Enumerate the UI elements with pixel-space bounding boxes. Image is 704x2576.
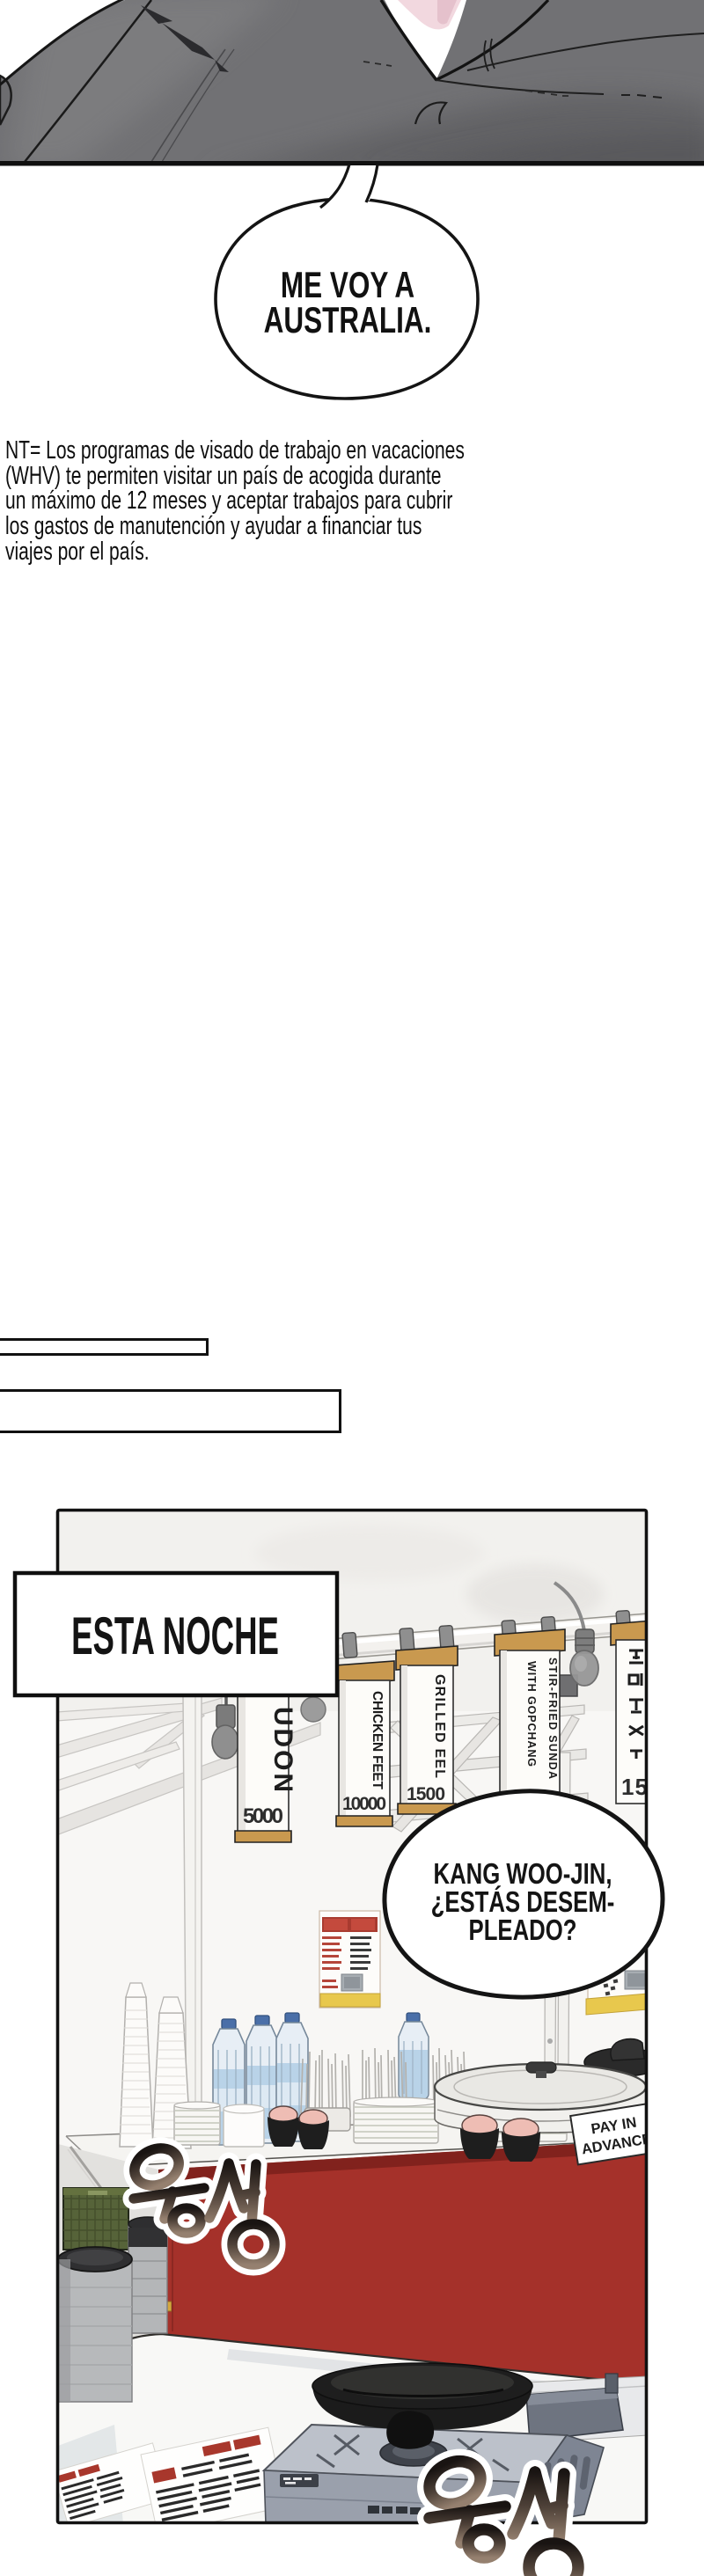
svg-text:ESTA NOCHE: ESTA NOCHE — [71, 1606, 279, 1666]
svg-text:5000: 5000 — [243, 1804, 283, 1828]
svg-text:UDON: UDON — [268, 1707, 297, 1793]
svg-text:WITH GOPCHANG: WITH GOPCHANG — [525, 1661, 538, 1767]
svg-text:10000: 10000 — [342, 1794, 386, 1814]
svg-text:PLEADO?: PLEADO? — [469, 1914, 577, 1947]
svg-text:CHICKEN FEET: CHICKEN FEET — [370, 1691, 385, 1790]
svg-text:1500: 1500 — [407, 1784, 445, 1804]
svg-text:15: 15 — [621, 1774, 648, 1800]
svg-text:GRILLED EEL: GRILLED EEL — [432, 1674, 447, 1778]
